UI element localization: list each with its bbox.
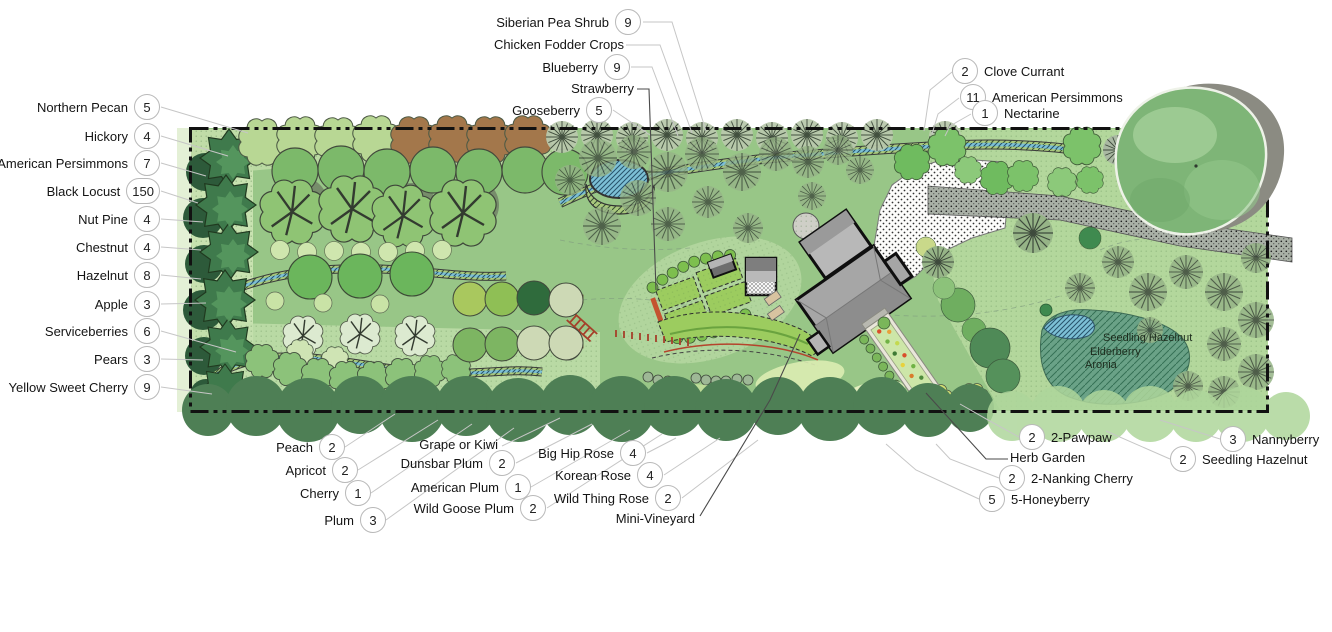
- count-badge: 5: [586, 97, 612, 123]
- callout-label: Gooseberry: [512, 104, 580, 117]
- callout-blueberry: Blueberry9: [542, 54, 630, 80]
- callout-label: Herb Garden: [1010, 451, 1085, 464]
- callout-pawpaw: 22-Pawpaw: [1019, 424, 1112, 450]
- count-badge: 4: [134, 234, 160, 260]
- callout-label: Clove Currant: [984, 65, 1064, 78]
- count-badge: 2: [1019, 424, 1045, 450]
- callout-nut-pine: Nut Pine4: [78, 206, 160, 232]
- callout-siberian-pea-shrub: Siberian Pea Shrub9: [496, 9, 641, 35]
- callout-label: 2-Pawpaw: [1051, 431, 1112, 444]
- wetland-label: Aronia: [1085, 359, 1118, 371]
- callout-dunsbar-plum: Dunsbar Plum2: [401, 450, 515, 476]
- count-badge: 4: [134, 123, 160, 149]
- count-badge: 5: [979, 486, 1005, 512]
- swale-trees: [288, 252, 434, 299]
- callout-chicken-fodder-crops: Chicken Fodder Crops: [494, 38, 624, 51]
- callout-label: Nannyberry: [1252, 433, 1319, 446]
- callout-mini-vineyard: Mini-Vineyard: [616, 512, 695, 525]
- callout-label: Pears: [94, 353, 128, 366]
- callout-hickory: Hickory4: [85, 123, 160, 149]
- callout-label: Nectarine: [1004, 107, 1060, 120]
- count-badge: 6: [134, 318, 160, 344]
- count-badge: 3: [134, 291, 160, 317]
- callout-label: Wild Goose Plum: [414, 502, 514, 515]
- callout-label: Big Hip Rose: [538, 447, 614, 460]
- callout-label: Yellow Sweet Cherry: [9, 381, 128, 394]
- windbreak-row: [182, 375, 994, 442]
- count-badge: 2: [952, 58, 978, 84]
- callout-pears: Pears3: [94, 346, 160, 372]
- count-badge: 5: [134, 94, 160, 120]
- count-badge: 7: [134, 150, 160, 176]
- count-badge: 9: [615, 9, 641, 35]
- callout-black-locust: Black Locust150: [47, 178, 160, 204]
- callout-label: Siberian Pea Shrub: [496, 16, 609, 29]
- callout-label: Korean Rose: [555, 469, 631, 482]
- callout-label: Wild Thing Rose: [554, 492, 649, 505]
- callout-gooseberry: Gooseberry5: [512, 97, 612, 123]
- callout-label: Chicken Fodder Crops: [494, 38, 624, 51]
- callout-label: Peach: [276, 441, 313, 454]
- callout-label: Plum: [324, 514, 354, 527]
- count-badge: 2: [520, 495, 546, 521]
- callout-clove-currant: 2Clove Currant: [952, 58, 1064, 84]
- count-badge: 9: [604, 54, 630, 80]
- callout-wild-goose-plum: Wild Goose Plum2: [414, 495, 546, 521]
- callout-hazelnut: Hazelnut8: [77, 262, 160, 288]
- wetland-label: Seedling Hazelnut: [1103, 332, 1192, 344]
- callout-label: Dunsbar Plum: [401, 457, 483, 470]
- callout-label: Mini-Vineyard: [616, 512, 695, 525]
- count-badge: 4: [134, 206, 160, 232]
- count-badge: 9: [134, 374, 160, 400]
- count-badge: 1: [345, 480, 371, 506]
- callout-label: Strawberry: [571, 82, 634, 95]
- herb-flank-tree: [878, 317, 890, 329]
- count-badge: 8: [134, 262, 160, 288]
- shed: [746, 258, 776, 295]
- callout-label: Nut Pine: [78, 213, 128, 226]
- callout-label: Serviceberries: [45, 325, 128, 338]
- callout-label: Hickory: [85, 130, 128, 143]
- site-plan-map: Seedling Hazelnut Elderberry Aronia: [0, 0, 1332, 632]
- callout-serviceberries: Serviceberries6: [45, 318, 160, 344]
- permaculture-site-plan: Seedling Hazelnut Elderberry Aronia Nort…: [0, 0, 1332, 632]
- callout-herb-garden: Herb Garden: [1010, 451, 1085, 464]
- callout-label: American Plum: [411, 481, 499, 494]
- callout-seedling-hazelnut: 2Seedling Hazelnut: [1170, 446, 1308, 472]
- callout-label: Chestnut: [76, 241, 128, 254]
- callout-nectarine: 1Nectarine: [972, 100, 1060, 126]
- callout-label: Blueberry: [542, 61, 598, 74]
- callout-apple: Apple3: [95, 291, 160, 317]
- count-badge: 3: [134, 346, 160, 372]
- callout-label: American Persimmons: [0, 157, 128, 170]
- count-badge: 2: [489, 450, 515, 476]
- wetland-label: Elderberry: [1090, 346, 1141, 358]
- callout-label: Apricot: [286, 464, 326, 477]
- callout-plum: Plum3: [324, 507, 386, 533]
- callout-label: 2-Nanking Cherry: [1031, 472, 1133, 485]
- callout-yellow-sweet-cherry: Yellow Sweet Cherry9: [9, 374, 160, 400]
- callout-label: Apple: [95, 298, 128, 311]
- count-badge: 1: [972, 100, 998, 126]
- callout-strawberry: Strawberry: [571, 82, 634, 95]
- callout-label: Northern Pecan: [37, 101, 128, 114]
- callout-cherry: Cherry1: [300, 480, 371, 506]
- callout-label: Seedling Hazelnut: [1202, 453, 1308, 466]
- callout-american-persimmons-left: American Persimmons7: [0, 150, 160, 176]
- count-badge: 2: [655, 485, 681, 511]
- callout-chestnut: Chestnut4: [76, 234, 160, 260]
- callout-wild-thing-rose: Wild Thing Rose2: [554, 485, 681, 511]
- callout-label: 5-Honeyberry: [1011, 493, 1090, 506]
- callout-label: Cherry: [300, 487, 339, 500]
- callout-label: Black Locust: [47, 185, 121, 198]
- callout-honeyberry: 55-Honeyberry: [979, 486, 1090, 512]
- callout-northern-pecan: Northern Pecan5: [37, 94, 160, 120]
- count-badge: 150: [126, 178, 160, 204]
- callout-label: Hazelnut: [77, 269, 128, 282]
- count-badge: 2: [1170, 446, 1196, 472]
- count-badge: 3: [360, 507, 386, 533]
